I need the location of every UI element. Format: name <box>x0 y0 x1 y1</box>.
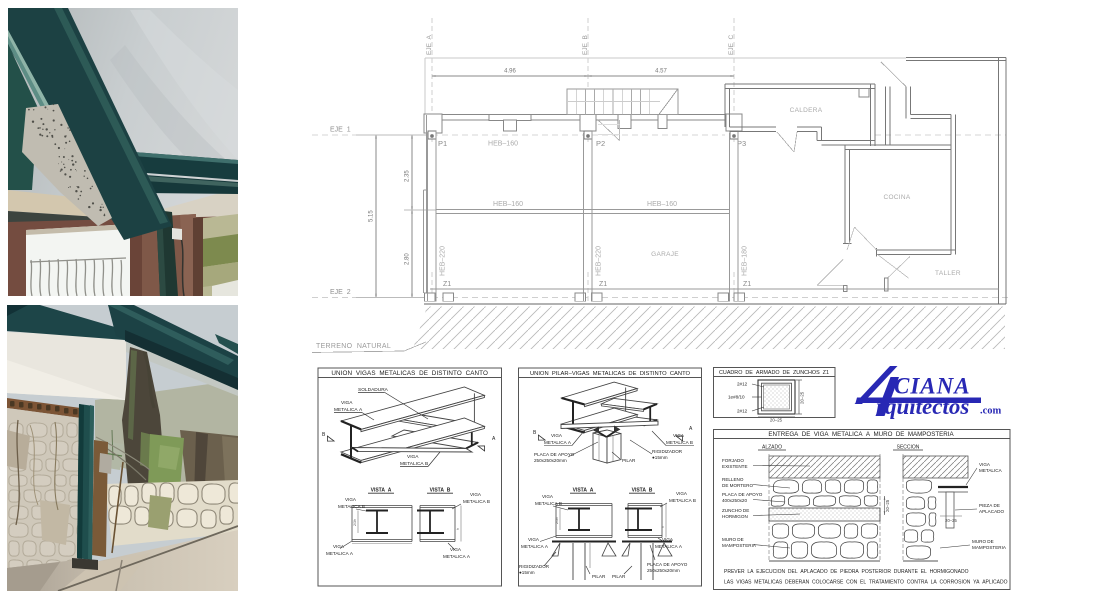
svg-text:EJE 1: EJE 1 <box>330 127 351 134</box>
svg-text:VISTA A: VISTA A <box>573 488 594 494</box>
svg-text:CALDERA: CALDERA <box>790 107 823 114</box>
svg-text:EJE C: EJE C <box>728 34 735 55</box>
svg-text:EJE B: EJE B <box>582 35 589 55</box>
svg-text:DE MORTERO: DE MORTERO <box>722 483 753 488</box>
svg-text:METALICA A: METALICA A <box>521 544 549 549</box>
svg-text:LAS VIGAS METALICAS DEBERAN: LAS VIGAS METALICAS DEBERAN COLOCARSE CO… <box>724 580 1008 586</box>
svg-text:METALICA A: METALICA A <box>544 440 572 445</box>
svg-text:P1: P1 <box>438 139 447 148</box>
svg-text:MURO DE: MURO DE <box>972 539 994 544</box>
svg-text:Z1: Z1 <box>443 281 451 288</box>
svg-text:APLACADO: APLACADO <box>979 509 1004 514</box>
svg-text:PILAR: PILAR <box>592 574 606 579</box>
svg-text:4.57: 4.57 <box>655 69 667 75</box>
svg-text:SECCION: SECCION <box>897 445 920 451</box>
svg-text:2/3h: 2/3h <box>555 517 559 524</box>
svg-text:EJE A: EJE A <box>426 34 433 55</box>
svg-text:PILAR: PILAR <box>622 458 636 463</box>
svg-text:UNION PILAR–VIGAS METALICAS: UNION PILAR–VIGAS METALICAS DE DISTINTO … <box>530 371 691 377</box>
svg-text:METALICA: METALICA <box>979 468 1003 473</box>
svg-text:VIGA: VIGA <box>662 537 674 542</box>
svg-text:GARAJE: GARAJE <box>651 251 679 258</box>
svg-text:20–25: 20–25 <box>770 418 783 423</box>
svg-text:COCINA: COCINA <box>883 194 910 201</box>
svg-text:TERRENO NATURAL: TERRENO NATURAL <box>316 343 391 350</box>
svg-text:Z1: Z1 <box>743 281 751 288</box>
svg-text:METALICA B: METALICA B <box>669 498 696 503</box>
svg-text:METALICA A: METALICA A <box>326 551 354 556</box>
svg-text:20–25: 20–25 <box>945 518 957 523</box>
svg-text:20–25: 20–25 <box>800 391 805 404</box>
svg-text:RELLENO: RELLENO <box>722 477 744 482</box>
svg-text:VIGA: VIGA <box>673 433 685 438</box>
svg-text:250x250x20mm: 250x250x20mm <box>534 458 567 463</box>
svg-text:METALICA B: METALICA B <box>535 501 562 506</box>
svg-text:ZUNCHO DE: ZUNCHO DE <box>722 508 749 513</box>
svg-text:METALICA A: METALICA A <box>443 554 471 559</box>
svg-text:CUADRO DE ARMADO DE ZUNCHO: CUADRO DE ARMADO DE ZUNCHOS Z1 <box>719 370 829 376</box>
svg-text:PREVER LA EJECUCION DEL AP: PREVER LA EJECUCION DEL APLACADO DE PIED… <box>724 569 969 575</box>
svg-text:HORMIGON: HORMIGON <box>722 514 748 519</box>
svg-text:PLACA DE APOYO: PLACA DE APOYO <box>534 452 575 457</box>
svg-text:TALLER: TALLER <box>935 270 961 277</box>
svg-text:2.80: 2.80 <box>405 253 411 265</box>
svg-text:2.35: 2.35 <box>405 170 411 182</box>
svg-text:2#12: 2#12 <box>737 382 748 387</box>
svg-text:rquitectos: rquitectos <box>876 394 969 419</box>
svg-text:PILAR: PILAR <box>612 574 626 579</box>
svg-text:METALICA B: METALICA B <box>400 461 428 467</box>
svg-text:h: h <box>456 528 460 530</box>
svg-text:HEB–180: HEB–180 <box>742 246 749 276</box>
svg-text:FORJADO: FORJADO <box>722 458 744 463</box>
svg-text:4.96: 4.96 <box>504 69 516 75</box>
svg-text:.com: .com <box>980 406 1002 417</box>
svg-text:2#12: 2#12 <box>737 409 748 414</box>
svg-text:HEB–160: HEB–160 <box>647 201 677 208</box>
svg-text:VIGA: VIGA <box>341 400 353 406</box>
svg-text:METALICA B: METALICA B <box>666 440 693 445</box>
svg-text:Z1: Z1 <box>599 281 607 288</box>
svg-text:MURO DE: MURO DE <box>722 537 744 542</box>
svg-text:ALZADO: ALZADO <box>762 445 782 451</box>
svg-text:●15mm: ●15mm <box>652 455 668 460</box>
svg-text:HEB–220: HEB–220 <box>596 246 603 276</box>
svg-text:400x250x20: 400x250x20 <box>722 498 747 503</box>
svg-text:HEB–160: HEB–160 <box>488 141 518 148</box>
svg-text:HEB–220: HEB–220 <box>440 246 447 276</box>
svg-text:250x250x20mm: 250x250x20mm <box>647 568 680 573</box>
svg-text:PIEZA DE: PIEZA DE <box>979 503 1000 508</box>
svg-text:P2: P2 <box>596 139 605 148</box>
svg-text:METALICA A: METALICA A <box>655 544 683 549</box>
svg-text:VIGA: VIGA <box>528 537 540 542</box>
svg-text:METALICA B: METALICA B <box>463 499 490 504</box>
svg-text:VISTA A: VISTA A <box>371 488 392 494</box>
svg-text:METALICA B: METALICA B <box>338 504 365 509</box>
svg-text:VISTA B: VISTA B <box>430 488 451 494</box>
svg-text:MAMPOSTERIA: MAMPOSTERIA <box>972 545 1007 550</box>
svg-text:RIGIDIZADOR: RIGIDIZADOR <box>652 449 683 454</box>
svg-text:PLACA DE APOYO: PLACA DE APOYO <box>722 492 763 497</box>
svg-text:h: h <box>661 526 665 528</box>
svg-text:VISTA B: VISTA B <box>632 488 653 494</box>
svg-text:HEB–160: HEB–160 <box>493 201 523 208</box>
svg-text:VIGA: VIGA <box>450 547 462 552</box>
svg-text:1e#8/10: 1e#8/10 <box>728 395 745 400</box>
svg-text:2/3h: 2/3h <box>353 519 357 526</box>
svg-text:20–25: 20–25 <box>885 499 890 512</box>
svg-text:VIGA: VIGA <box>407 454 419 460</box>
svg-text:METALICA A: METALICA A <box>334 407 363 413</box>
svg-text:EJE 2: EJE 2 <box>330 289 351 296</box>
svg-text:VIGA: VIGA <box>542 494 554 499</box>
svg-text:VIGA: VIGA <box>551 433 563 438</box>
svg-text:EXISTENTE: EXISTENTE <box>722 464 748 469</box>
svg-text:ENTREGA DE VIGA METALICA A: ENTREGA DE VIGA METALICA A MURO DE MAMPO… <box>768 431 954 438</box>
svg-text:●15mm: ●15mm <box>519 570 535 575</box>
svg-text:VIGA: VIGA <box>345 497 357 502</box>
svg-text:5.15: 5.15 <box>369 210 375 222</box>
svg-text:PLACA DE APOYO: PLACA DE APOYO <box>647 562 688 567</box>
svg-text:VIGA: VIGA <box>979 462 991 467</box>
svg-text:VIGA: VIGA <box>676 491 688 496</box>
svg-text:MAMPOSTERIA: MAMPOSTERIA <box>722 543 757 548</box>
svg-text:VIGA: VIGA <box>470 492 482 497</box>
svg-text:UNION VIGAS METALICAS DE D: UNION VIGAS METALICAS DE DISTINTO CANTO <box>331 370 488 377</box>
